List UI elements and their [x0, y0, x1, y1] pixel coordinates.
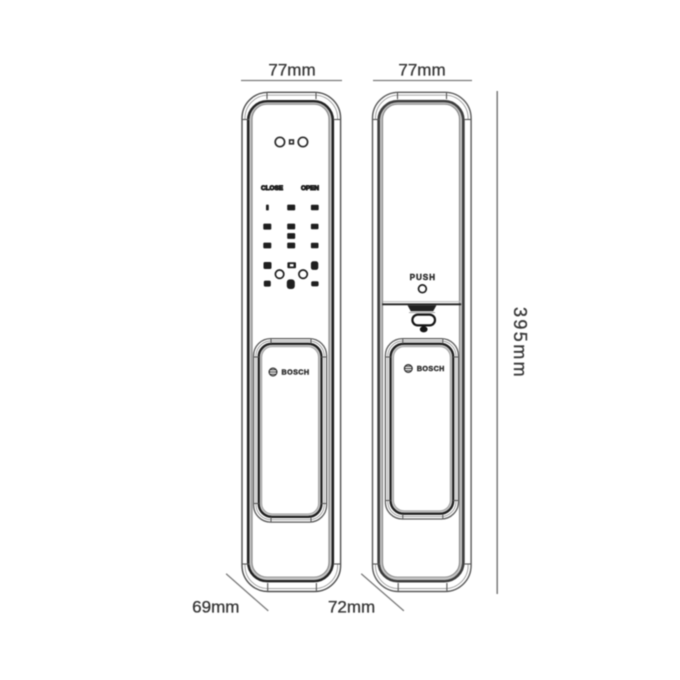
svg-text:77mm: 77mm — [398, 61, 445, 80]
svg-text:CLOSE: CLOSE — [261, 185, 284, 192]
svg-text:PUSH: PUSH — [410, 273, 436, 282]
svg-text:OPEN: OPEN — [301, 185, 319, 192]
svg-text:72mm: 72mm — [328, 598, 375, 617]
svg-text:395mm: 395mm — [510, 307, 530, 379]
svg-text:77mm: 77mm — [268, 61, 315, 80]
svg-text:BOSCH: BOSCH — [282, 368, 310, 377]
svg-text:69mm: 69mm — [192, 598, 239, 617]
svg-text:BOSCH: BOSCH — [417, 364, 445, 373]
